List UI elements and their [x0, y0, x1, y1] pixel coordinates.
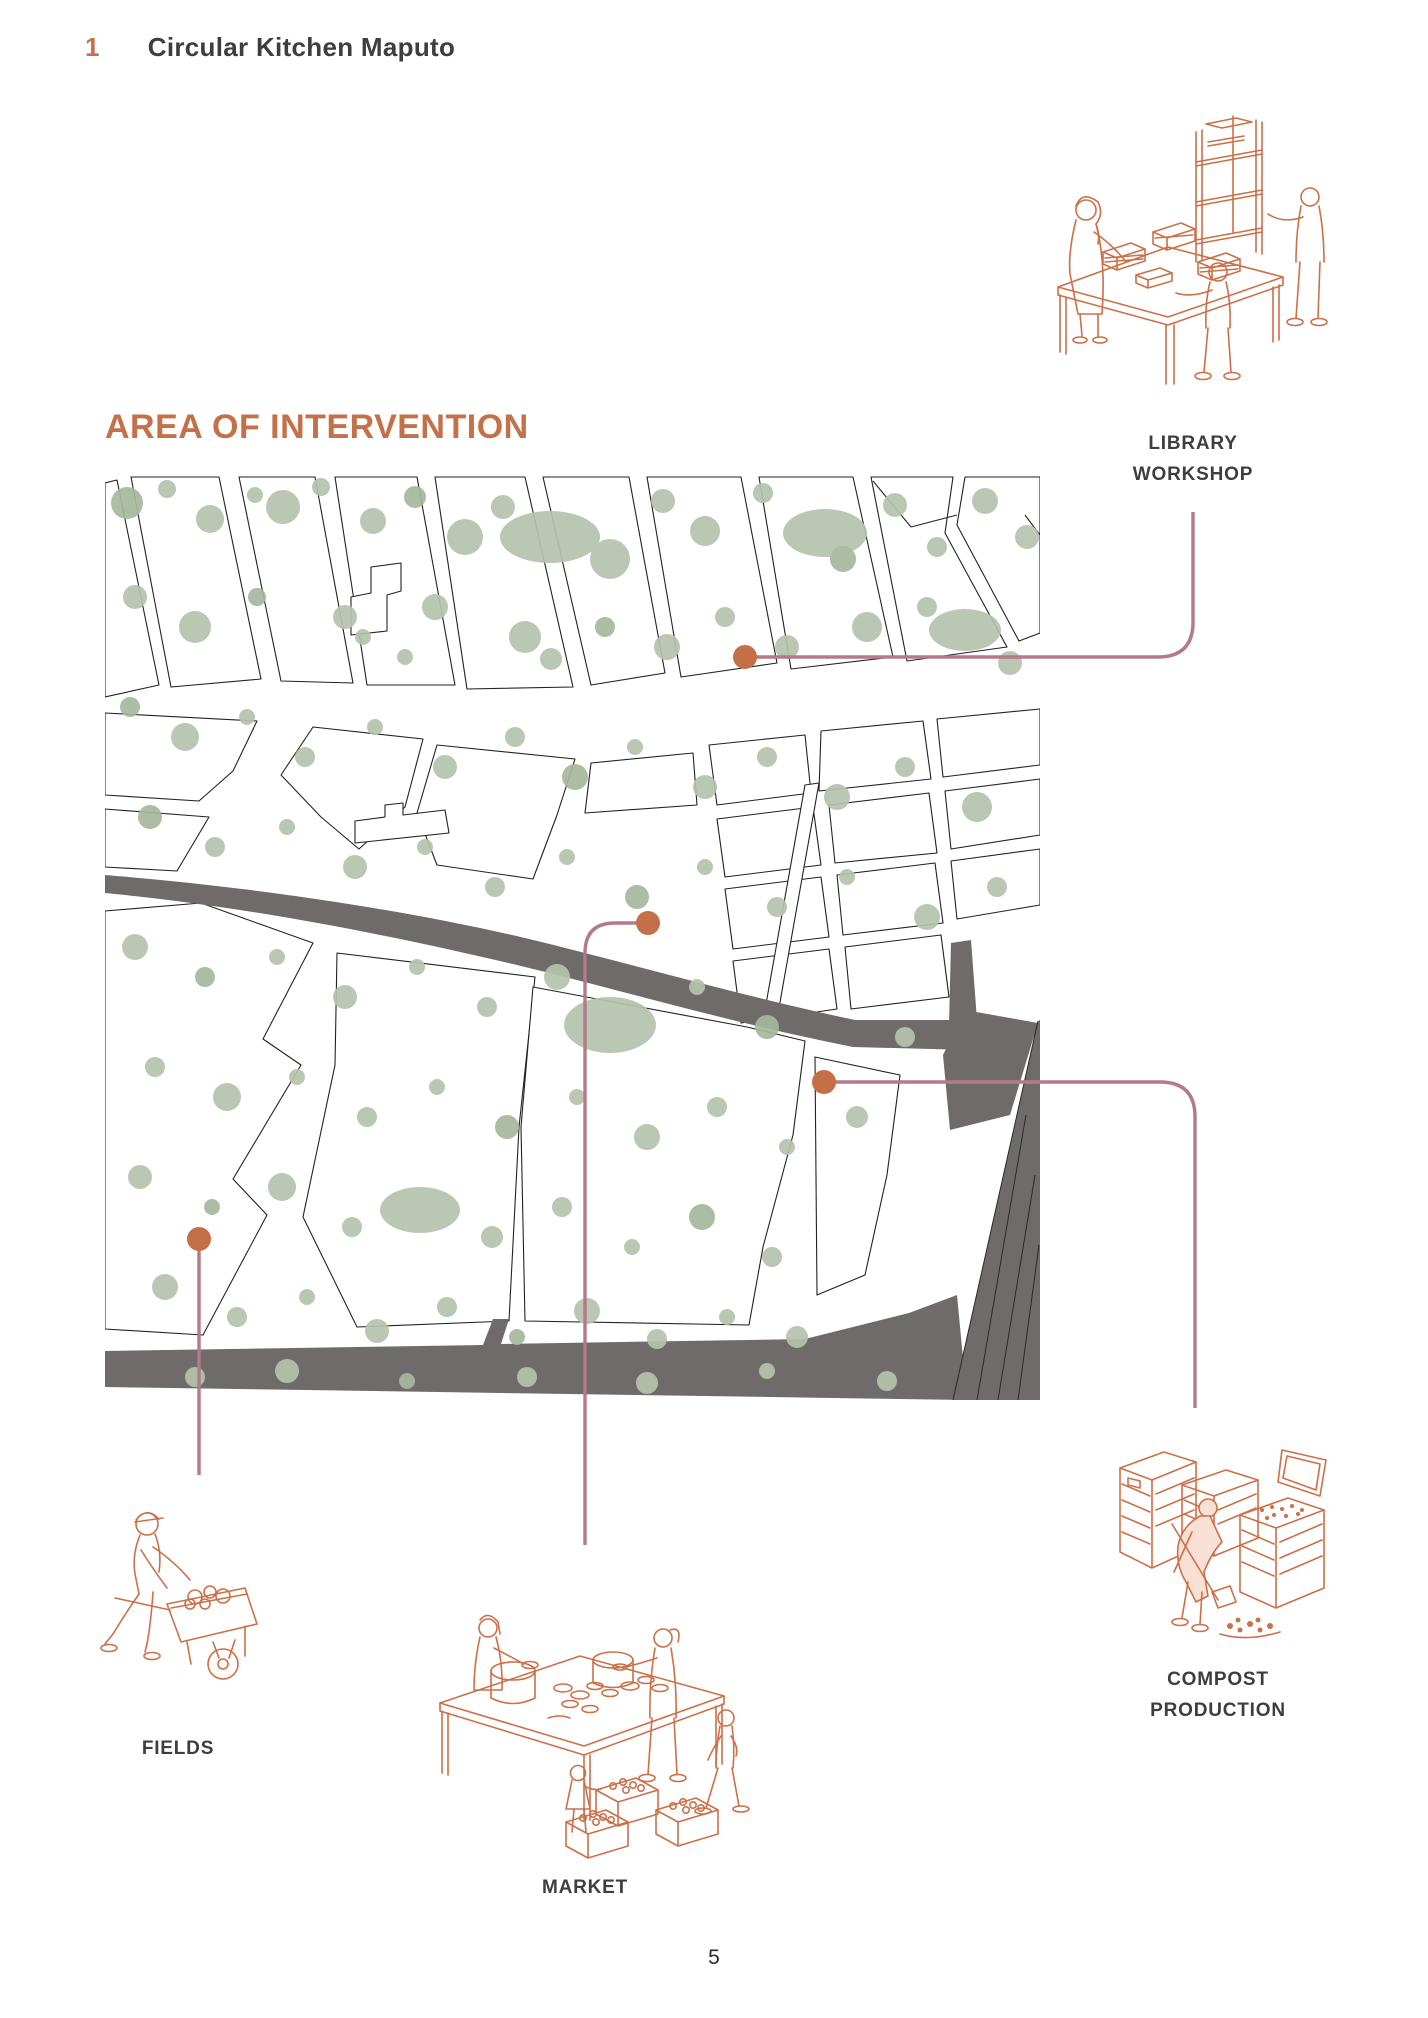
compost-production-illustration — [1112, 1430, 1362, 1670]
label-library-line2: WORKSHOP — [1073, 459, 1313, 490]
chapter-title: Circular Kitchen Maputo — [148, 32, 455, 62]
fields-illustration — [95, 1492, 270, 1707]
library-workshop-illustration — [1048, 112, 1363, 412]
market-illustration — [428, 1568, 758, 1868]
chapter-number: 1 — [85, 32, 100, 62]
section-title: AREA OF INTERVENTION — [105, 408, 529, 447]
label-library-workshop: LIBRARY WORKSHOP — [1073, 428, 1313, 490]
area-of-intervention-map — [105, 475, 1040, 1400]
report-page: 1Circular Kitchen Maputo AREA OF INTERVE… — [0, 0, 1428, 2018]
label-library-line1: LIBRARY — [1073, 428, 1313, 459]
label-fields: FIELDS — [78, 1733, 278, 1764]
label-compost-production: COMPOST PRODUCTION — [1098, 1664, 1338, 1726]
label-compost-line2: PRODUCTION — [1098, 1695, 1338, 1726]
page-number: 5 — [664, 1946, 764, 1970]
chapter-header: 1Circular Kitchen Maputo — [85, 32, 455, 63]
map-svg — [105, 475, 1040, 1400]
label-market: MARKET — [485, 1872, 685, 1903]
